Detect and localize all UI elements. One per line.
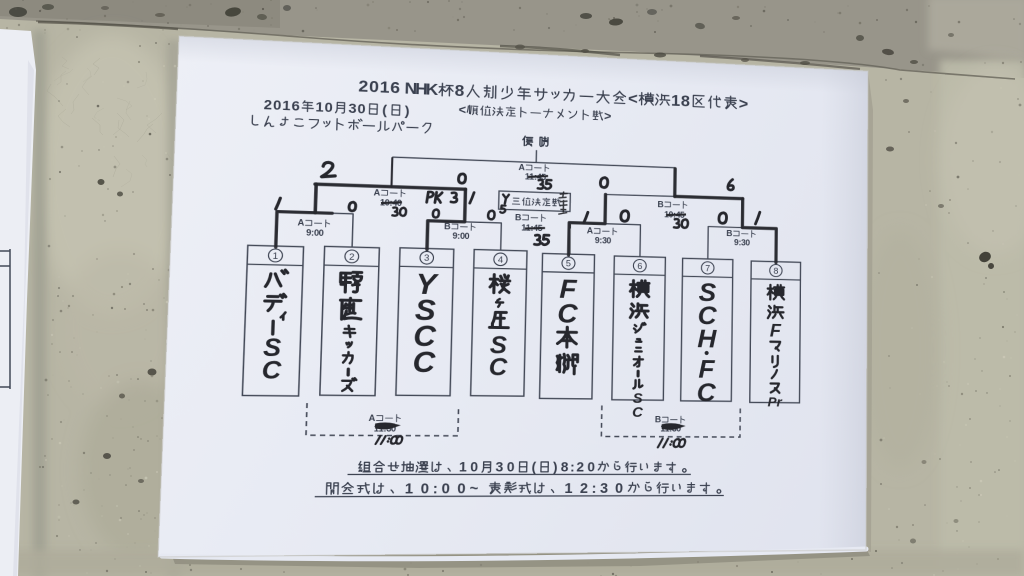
svg-text:~: ~ xyxy=(469,481,478,497)
svg-text:2: 2 xyxy=(263,98,272,113)
svg-text:0: 0 xyxy=(324,101,333,116)
svg-text:K: K xyxy=(425,80,438,99)
svg-text:B: B xyxy=(657,200,664,209)
svg-text:H: H xyxy=(697,324,717,353)
svg-text:C: C xyxy=(261,356,283,385)
svg-text:7: 7 xyxy=(705,264,710,274)
svg-text:): ) xyxy=(405,104,410,119)
svg-text:A: A xyxy=(373,188,380,198)
svg-text:2: 2 xyxy=(576,460,584,475)
svg-text:6: 6 xyxy=(390,78,400,97)
svg-text:A: A xyxy=(518,163,525,172)
svg-text:C: C xyxy=(557,298,579,329)
svg-text:C: C xyxy=(632,405,644,421)
svg-text:F: F xyxy=(770,321,782,341)
svg-text::: : xyxy=(570,460,575,475)
svg-text:0: 0 xyxy=(470,460,478,475)
svg-text:3: 3 xyxy=(600,481,608,497)
svg-text:1: 1 xyxy=(379,78,389,97)
svg-text:8: 8 xyxy=(773,266,778,276)
svg-text:>: > xyxy=(739,95,749,113)
svg-text:1: 1 xyxy=(272,251,278,262)
svg-text:C: C xyxy=(412,345,437,378)
svg-text:1: 1 xyxy=(315,100,324,115)
svg-text:8: 8 xyxy=(561,460,569,475)
svg-text:0: 0 xyxy=(464,232,469,241)
svg-text:<: < xyxy=(458,103,466,117)
svg-text:2: 2 xyxy=(349,252,355,262)
svg-text:0: 0 xyxy=(369,77,379,96)
svg-text:1: 1 xyxy=(671,91,680,109)
svg-text:Pr: Pr xyxy=(768,395,783,410)
svg-text::: : xyxy=(591,481,596,497)
svg-text:0: 0 xyxy=(441,481,450,497)
svg-text:0: 0 xyxy=(745,238,750,247)
svg-text:1: 1 xyxy=(282,99,291,114)
svg-text:C: C xyxy=(488,353,508,381)
svg-text:0: 0 xyxy=(615,481,623,497)
svg-text:0: 0 xyxy=(587,460,595,475)
svg-text:A: A xyxy=(587,226,594,235)
svg-text:<: < xyxy=(628,89,638,107)
svg-text:): ) xyxy=(553,460,558,475)
svg-text:3: 3 xyxy=(495,460,503,475)
svg-text:(: ( xyxy=(531,460,536,475)
svg-text:3: 3 xyxy=(348,102,357,117)
svg-text::: : xyxy=(433,481,438,497)
svg-text:0: 0 xyxy=(420,481,429,497)
svg-text:>: > xyxy=(604,109,612,123)
svg-text:A: A xyxy=(297,218,304,228)
svg-text:1: 1 xyxy=(405,481,414,497)
svg-text:1: 1 xyxy=(459,460,467,475)
svg-text:A: A xyxy=(369,413,376,423)
svg-text:2: 2 xyxy=(358,77,369,96)
svg-text:4: 4 xyxy=(498,255,504,265)
svg-text:B: B xyxy=(726,229,733,238)
svg-text:8: 8 xyxy=(681,92,690,110)
svg-text:0: 0 xyxy=(606,236,611,245)
svg-text:B: B xyxy=(515,213,522,222)
svg-text:0: 0 xyxy=(319,228,324,238)
svg-text:C: C xyxy=(696,377,716,406)
svg-text:6: 6 xyxy=(291,99,300,114)
svg-text:0: 0 xyxy=(457,481,466,497)
svg-text:5: 5 xyxy=(566,259,571,269)
svg-text:B: B xyxy=(444,222,451,231)
svg-text:(: ( xyxy=(382,103,387,118)
svg-text:1: 1 xyxy=(564,481,572,497)
svg-text:0: 0 xyxy=(273,98,282,113)
svg-text:0: 0 xyxy=(507,460,515,475)
svg-text:B: B xyxy=(655,415,662,424)
svg-text:0: 0 xyxy=(357,102,366,117)
svg-text:2: 2 xyxy=(580,481,588,497)
svg-text:6: 6 xyxy=(637,262,642,272)
svg-text:8: 8 xyxy=(454,81,464,100)
svg-text:3: 3 xyxy=(424,253,430,263)
